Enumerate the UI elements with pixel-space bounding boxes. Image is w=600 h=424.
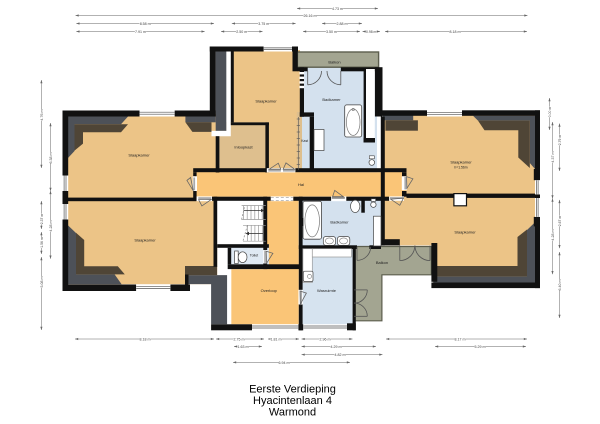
svg-text:7.91 m: 7.91 m (135, 30, 146, 34)
svg-text:26.16 m: 26.16 m (304, 14, 317, 18)
svg-text:0.00 m: 0.00 m (548, 107, 552, 118)
svg-text:4.76 m: 4.76 m (40, 110, 44, 121)
svg-text:Eerste Verdieping: Eerste Verdieping (249, 384, 336, 396)
svg-text:3.08 m: 3.08 m (40, 277, 44, 288)
svg-text:1.63 m: 1.63 m (238, 345, 249, 349)
svg-text:2.37 m: 2.37 m (40, 214, 44, 225)
svg-text:Balkon: Balkon (376, 260, 388, 265)
svg-text:Slaapkamer: Slaapkamer (128, 153, 150, 158)
svg-text:2.50 m: 2.50 m (236, 30, 247, 34)
svg-text:4.37 m: 4.37 m (551, 152, 555, 163)
svg-text:Slaapkamer: Slaapkamer (454, 230, 476, 235)
svg-text:Overloop: Overloop (261, 288, 278, 293)
svg-text:Inloopkast: Inloopkast (234, 145, 253, 150)
svg-text:Wasruimte: Wasruimte (317, 288, 337, 293)
svg-text:Balkon: Balkon (328, 59, 340, 64)
svg-text:8.17 m: 8.17 m (455, 337, 466, 341)
svg-text:2.79 m: 2.79 m (558, 135, 562, 146)
svg-text:2.67 m: 2.67 m (558, 216, 562, 227)
svg-text:6.38 m: 6.38 m (49, 153, 53, 164)
svg-text:h=1.56m: h=1.56m (454, 166, 467, 170)
svg-text:Slaapkamer: Slaapkamer (450, 160, 472, 165)
svg-text:4.28 m: 4.28 m (551, 230, 555, 241)
svg-text:6.94 m: 6.94 m (279, 361, 290, 365)
svg-text:0.98 m: 0.98 m (366, 30, 377, 34)
svg-text:4.82 m: 4.82 m (335, 353, 346, 357)
svg-text:Slaapkamer: Slaapkamer (134, 238, 156, 243)
svg-text:5.29 m: 5.29 m (475, 345, 486, 349)
svg-text:Badkamer: Badkamer (330, 219, 349, 224)
svg-text:1.56 m: 1.56 m (40, 237, 44, 248)
svg-text:4.73 m: 4.73 m (332, 7, 343, 11)
svg-text:Hal: Hal (298, 182, 304, 187)
svg-text:Toilet: Toilet (250, 254, 258, 258)
svg-text:Hyacintenlaan 4: Hyacintenlaan 4 (253, 395, 332, 407)
svg-text:8.58 m: 8.58 m (140, 22, 151, 26)
svg-text:1.81 m: 1.81 m (271, 337, 282, 341)
svg-text:8.18 m: 8.18 m (140, 337, 151, 341)
svg-text:8.18 m: 8.18 m (450, 30, 461, 34)
svg-text:2.88 m: 2.88 m (337, 22, 348, 26)
svg-text:3.75 m: 3.75 m (258, 22, 269, 26)
svg-text:6.40 m: 6.40 m (558, 280, 562, 291)
svg-text:2.75 m: 2.75 m (234, 337, 245, 341)
svg-text:2.96 m: 2.96 m (320, 337, 331, 341)
svg-text:4.28 m: 4.28 m (49, 221, 53, 232)
svg-text:Slaapkamer: Slaapkamer (255, 99, 277, 104)
svg-text:4.29 m: 4.29 m (331, 345, 342, 349)
svg-text:Kast: Kast (301, 139, 308, 143)
svg-text:Badkamer: Badkamer (322, 97, 341, 102)
svg-text:3.50 m: 3.50 m (326, 30, 337, 34)
svg-text:Warmond: Warmond (269, 407, 316, 419)
